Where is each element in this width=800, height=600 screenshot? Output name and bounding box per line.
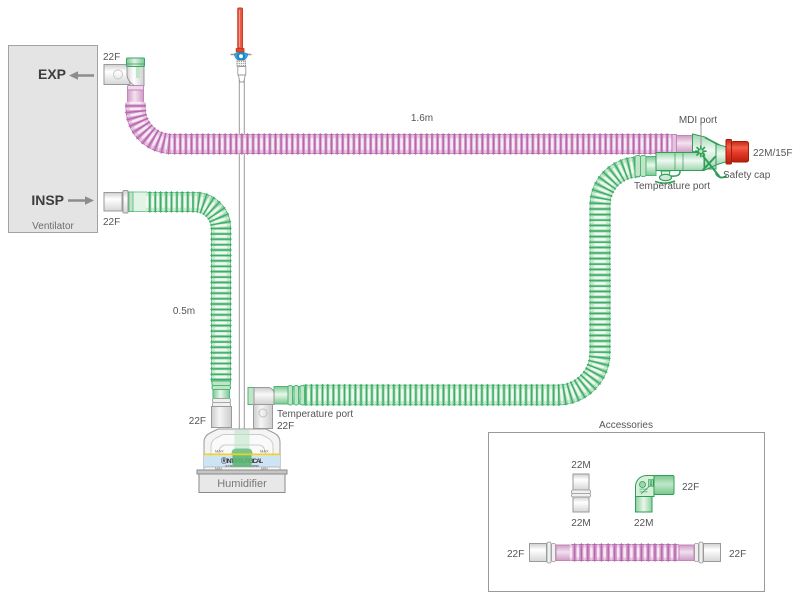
svg-text:22F: 22F bbox=[103, 52, 120, 63]
svg-text:22M: 22M bbox=[634, 518, 653, 529]
svg-text:Ventilator: Ventilator bbox=[32, 221, 74, 232]
svg-text:1.6m: 1.6m bbox=[411, 113, 433, 124]
svg-text:22M/15F: 22M/15F bbox=[753, 148, 792, 159]
svg-text:22F: 22F bbox=[189, 416, 206, 427]
svg-text:Safety cap: Safety cap bbox=[723, 170, 771, 181]
svg-text:22F: 22F bbox=[103, 217, 120, 228]
svg-text:22F: 22F bbox=[507, 549, 524, 560]
svg-text:22M: 22M bbox=[571, 518, 590, 529]
svg-text:0.5m: 0.5m bbox=[173, 306, 195, 317]
svg-text:22F: 22F bbox=[277, 421, 294, 432]
svg-text:Accessories: Accessories bbox=[599, 420, 653, 431]
svg-text:22F: 22F bbox=[729, 549, 746, 560]
svg-text:INSP: INSP bbox=[31, 192, 64, 208]
svg-text:22F: 22F bbox=[682, 482, 699, 493]
svg-text:MDI port: MDI port bbox=[679, 115, 718, 126]
svg-text:MAX: MAX bbox=[260, 449, 269, 454]
svg-text:Temperature port: Temperature port bbox=[634, 181, 710, 192]
svg-text:EXP: EXP bbox=[38, 66, 66, 82]
svg-text:Temperature port: Temperature port bbox=[277, 409, 353, 420]
svg-text:MAX: MAX bbox=[215, 449, 224, 454]
svg-text:Humidifier: Humidifier bbox=[217, 478, 267, 490]
svg-text:22M: 22M bbox=[571, 460, 590, 471]
